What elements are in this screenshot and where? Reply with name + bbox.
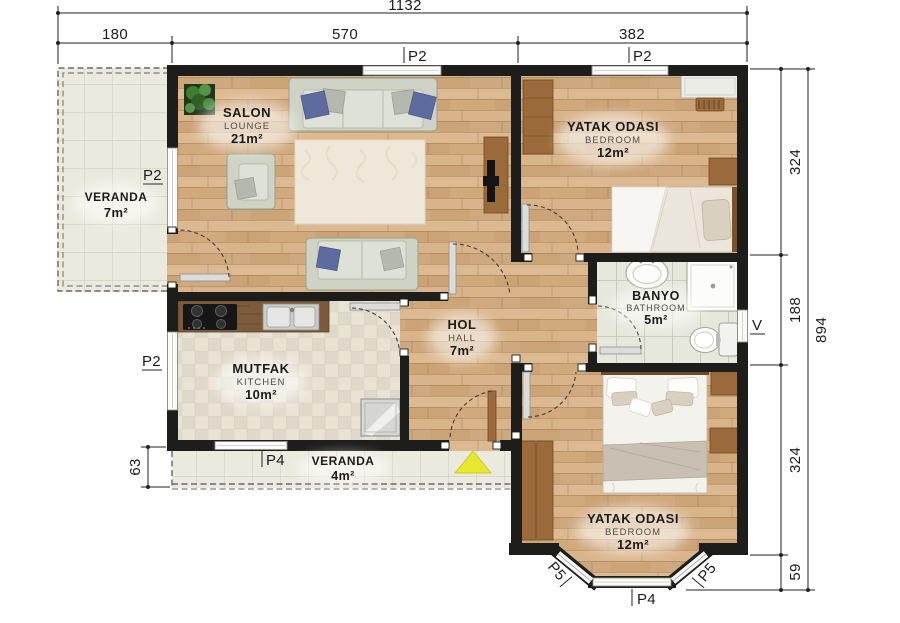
room-name: BANYO: [632, 289, 680, 303]
bath-sink: [626, 258, 668, 289]
room-area: 4m²: [331, 469, 354, 483]
room-sub: BATHROOM: [626, 303, 685, 313]
label-p2-salon-top: P2: [408, 48, 427, 65]
room-name: YATAK ODASI: [567, 119, 659, 134]
door-leaf-salon-hall: [449, 242, 456, 294]
sofa-small: [306, 238, 418, 290]
room-name: HOL: [448, 317, 477, 332]
room-name: YATAK ODASI: [587, 511, 679, 526]
room-name: VERANDA: [312, 454, 375, 468]
rug: [295, 140, 425, 224]
dim-left-bottom: 63: [127, 458, 144, 475]
room-area: 7m²: [104, 205, 129, 220]
dim-top-mid: 570: [332, 26, 358, 43]
dim-right-4: 59: [787, 563, 804, 580]
room-area: 10m²: [245, 387, 277, 402]
nightstand: [710, 428, 740, 453]
room-area: 7m²: [450, 343, 475, 358]
dim-top-total: 1132: [388, 0, 421, 14]
door-leaf-kitchen: [350, 303, 400, 310]
bed-single: [612, 187, 739, 252]
label-p4-bay: P4: [637, 591, 656, 608]
room-area: 5m²: [644, 313, 667, 327]
door-leaf-bedroom-bottom: [523, 372, 530, 419]
wardrobe: [520, 441, 553, 540]
cooktop: [183, 304, 237, 330]
window-bathroom-v: [738, 310, 748, 342]
window-salon-top-p2: [363, 66, 441, 75]
floor-plan-page: 1132 180 570 382 324 188 324 59: [0, 0, 900, 623]
tv-unit: [483, 137, 508, 213]
dim-right-2: 188: [787, 297, 804, 323]
armchair: [227, 154, 275, 209]
dim-right-total: 894: [813, 317, 830, 343]
room-area: 12m²: [617, 537, 649, 552]
door-bay-bottom-p4: [593, 578, 671, 586]
room-name: SALON: [223, 105, 271, 120]
nightstand: [711, 369, 739, 395]
door-leaf-bathroom: [600, 347, 641, 354]
door-leaf-entrance: [488, 391, 496, 441]
room-area: 12m²: [597, 145, 629, 160]
floor-plan-canvas: 1132 180 570 382 324 188 324 59: [0, 0, 900, 623]
room-label-hall: HOL HALL 7m²: [448, 317, 477, 358]
door-leaf-bedroom-top: [522, 204, 529, 252]
door-leaf-salon-veranda: [180, 274, 230, 281]
kitchen-sink: [263, 304, 319, 330]
dim-right-3: 324: [787, 447, 804, 473]
door-opening-floor: [167, 234, 178, 284]
door-veranda-p4: [215, 442, 287, 450]
dim-top-left: 180: [102, 26, 128, 43]
dim-right-1: 324: [787, 149, 804, 175]
window-kitchen-left-p2: [168, 332, 178, 410]
label-p4-veranda: P4: [266, 452, 285, 469]
window-bedroom-top-p2: [592, 66, 668, 75]
dim-top-right: 382: [619, 26, 645, 43]
label-p2-bedroom-top: P2: [633, 48, 652, 65]
label-v-bathroom: V: [752, 317, 762, 334]
label-p2-salon-left: P2: [143, 167, 162, 184]
room-area: 21m²: [231, 131, 263, 146]
fridge: [361, 399, 400, 436]
room-name: VERANDA: [85, 190, 148, 204]
cabinet: [709, 158, 738, 185]
sofa-large: [289, 78, 437, 131]
window-salon-left-p2: [168, 148, 178, 228]
room-name: MUTFAK: [232, 361, 289, 376]
label-p2-kitchen-left: P2: [142, 353, 161, 370]
bed-double: [601, 368, 709, 493]
